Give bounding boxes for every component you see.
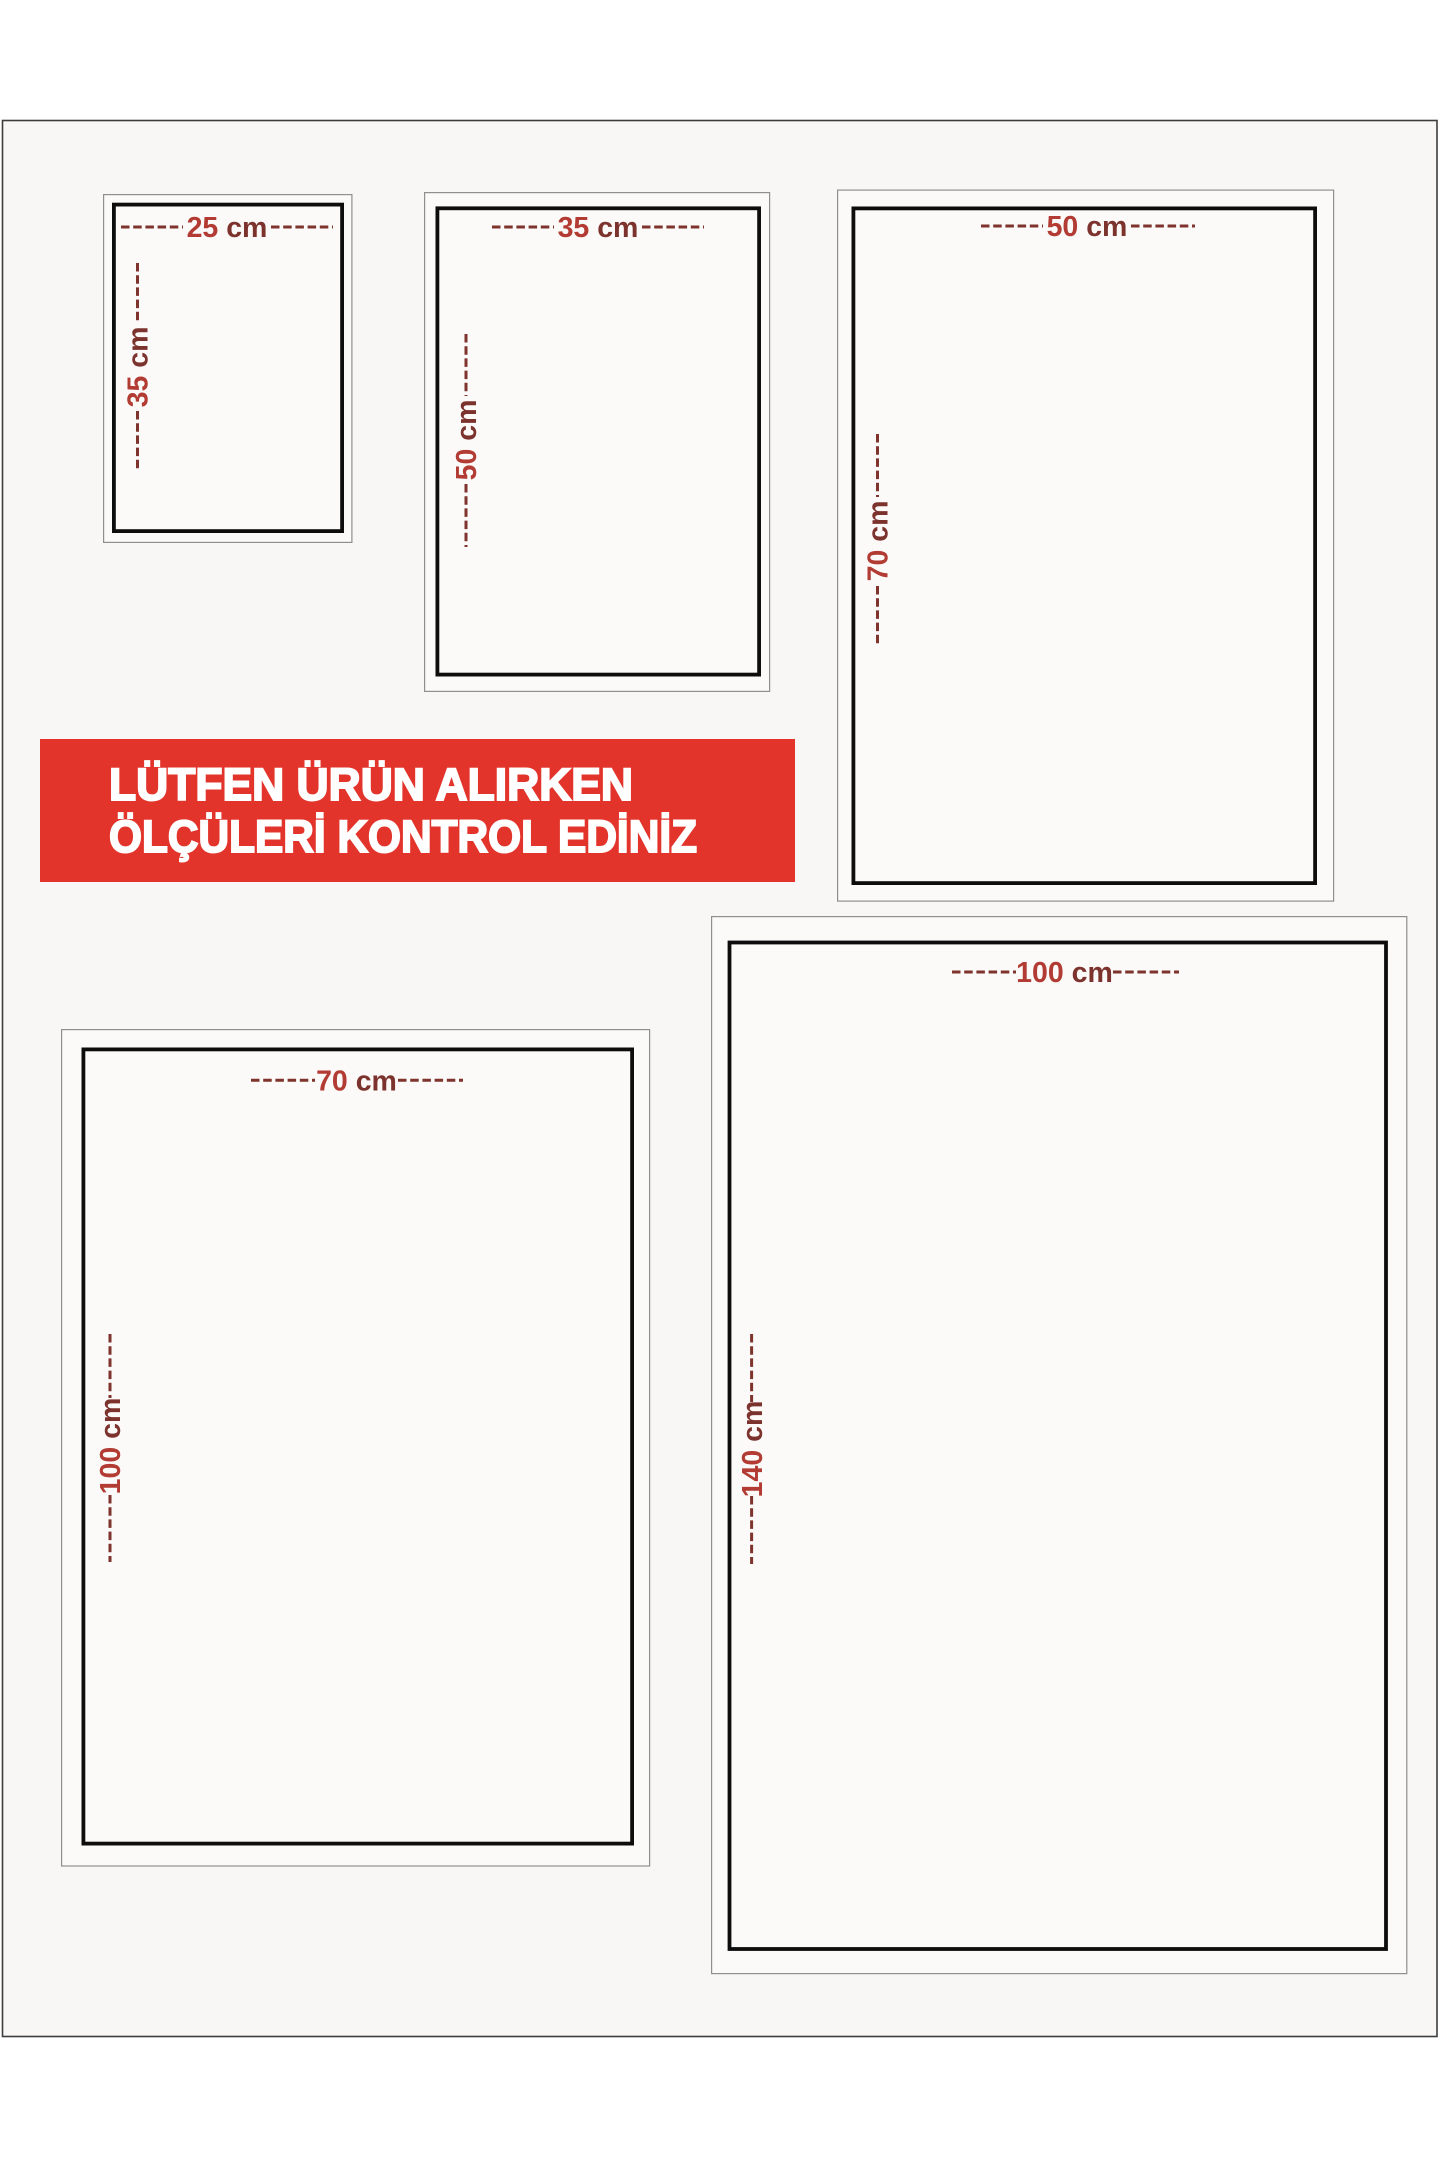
svg-text:100 cm: 100 cm: [95, 1398, 127, 1495]
svg-text:140 cm: 140 cm: [737, 1401, 769, 1498]
svg-text:50 cm: 50 cm: [451, 400, 483, 481]
svg-text:35 cm: 35 cm: [558, 212, 639, 244]
svg-text:25 cm: 25 cm: [187, 212, 268, 244]
svg-text:70 cm: 70 cm: [316, 1066, 397, 1098]
svg-text:70 cm: 70 cm: [863, 501, 895, 582]
svg-text:35 cm: 35 cm: [123, 327, 155, 408]
svg-text:ÖLÇÜLERİ KONTROL EDİNİZ: ÖLÇÜLERİ KONTROL EDİNİZ: [109, 811, 697, 862]
svg-text:50 cm: 50 cm: [1047, 211, 1128, 243]
svg-text:LÜTFEN ÜRÜN ALIRKEN: LÜTFEN ÜRÜN ALIRKEN: [109, 759, 633, 810]
svg-text:100 cm: 100 cm: [1016, 957, 1113, 989]
